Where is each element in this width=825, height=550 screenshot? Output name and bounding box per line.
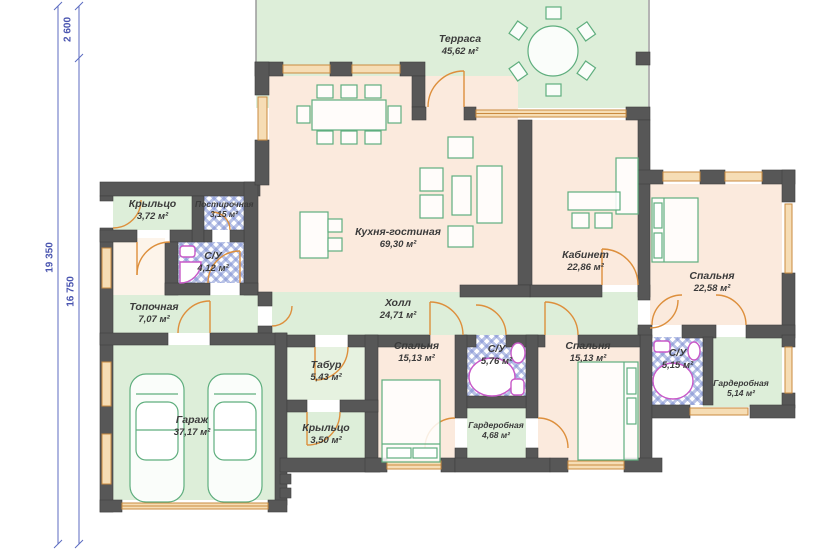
label-vestibule: Табур5,43 м² xyxy=(289,359,363,383)
dimension-total-height: 19 350 xyxy=(45,233,56,283)
label-kitchen-living: Кухня-гостиная69,30 м² xyxy=(328,226,468,250)
label-bedroom-2: Спальня15,13 м² xyxy=(378,340,455,364)
label-bathroom-3: С/У5,15 м² xyxy=(650,347,705,371)
label-bedroom-3: Спальня15,13 м² xyxy=(538,340,638,364)
floor-plan: Терраса45,62 м² Кухня-гостиная69,30 м² К… xyxy=(0,0,825,550)
label-wardrobe-2: Гардеробная5,14 м² xyxy=(700,378,782,398)
label-garage: Гараж37,17 м² xyxy=(148,414,236,438)
label-porch-upper: Крыльцо3,72 м² xyxy=(113,198,192,222)
label-hall: Холл24,71 м² xyxy=(352,297,444,321)
dimension-lower-segment: 16 750 xyxy=(66,267,77,317)
label-bathroom-2: С/У5,76 м² xyxy=(467,343,526,367)
label-porch-lower: Крыльцо3,50 м² xyxy=(289,422,363,446)
label-boiler: Топочная7,07 м² xyxy=(108,301,200,325)
label-office: Кабинет22,86 м² xyxy=(538,249,633,273)
label-bathroom-1: С/У4,12 м² xyxy=(184,250,242,274)
dimension-top-segment: 2 600 xyxy=(63,8,74,52)
label-terrace: Терраса45,62 м² xyxy=(405,33,515,57)
label-bedroom-1: Спальня22,58 м² xyxy=(662,270,762,294)
label-laundry: Постирочная3,15 м² xyxy=(195,199,253,219)
label-wardrobe-1: Гардеробная4,68 м² xyxy=(460,420,532,440)
